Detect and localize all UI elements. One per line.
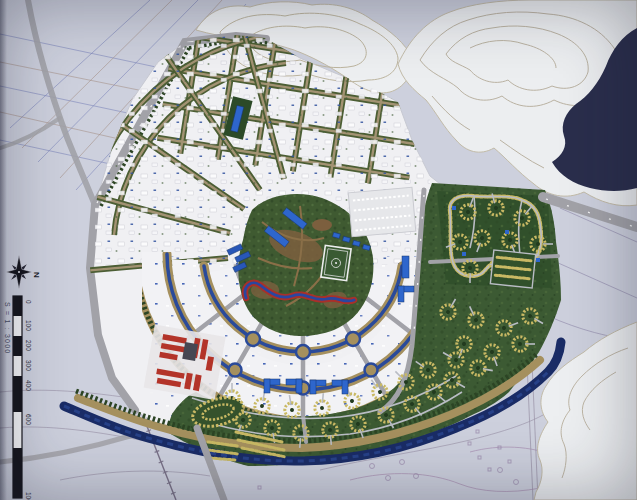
model-photo: N S = 1 : 3000 0 100 200 300 400 600 100…: [0, 0, 637, 500]
north-label: N: [32, 272, 41, 278]
scale-tick-label: 0: [25, 300, 32, 304]
red-housing-block: [144, 324, 226, 400]
northeast-subgrid: [490, 250, 535, 288]
soccer-field: [321, 245, 351, 280]
scale-tick-label: 400: [25, 380, 32, 391]
parking-lot: [348, 187, 416, 236]
scale-tick-label: 200: [25, 340, 32, 351]
scale-tick-label: 1000: [25, 492, 32, 500]
scale-tick-label: 600: [25, 414, 32, 425]
masterplan-model: N S = 1 : 3000 0 100 200 300 400 600 100…: [0, 0, 637, 500]
scale-tick-label: 100: [25, 320, 32, 331]
scale-ratio-label: S = 1 : 3000: [4, 302, 11, 354]
scale-tick-label: 300: [25, 360, 32, 371]
